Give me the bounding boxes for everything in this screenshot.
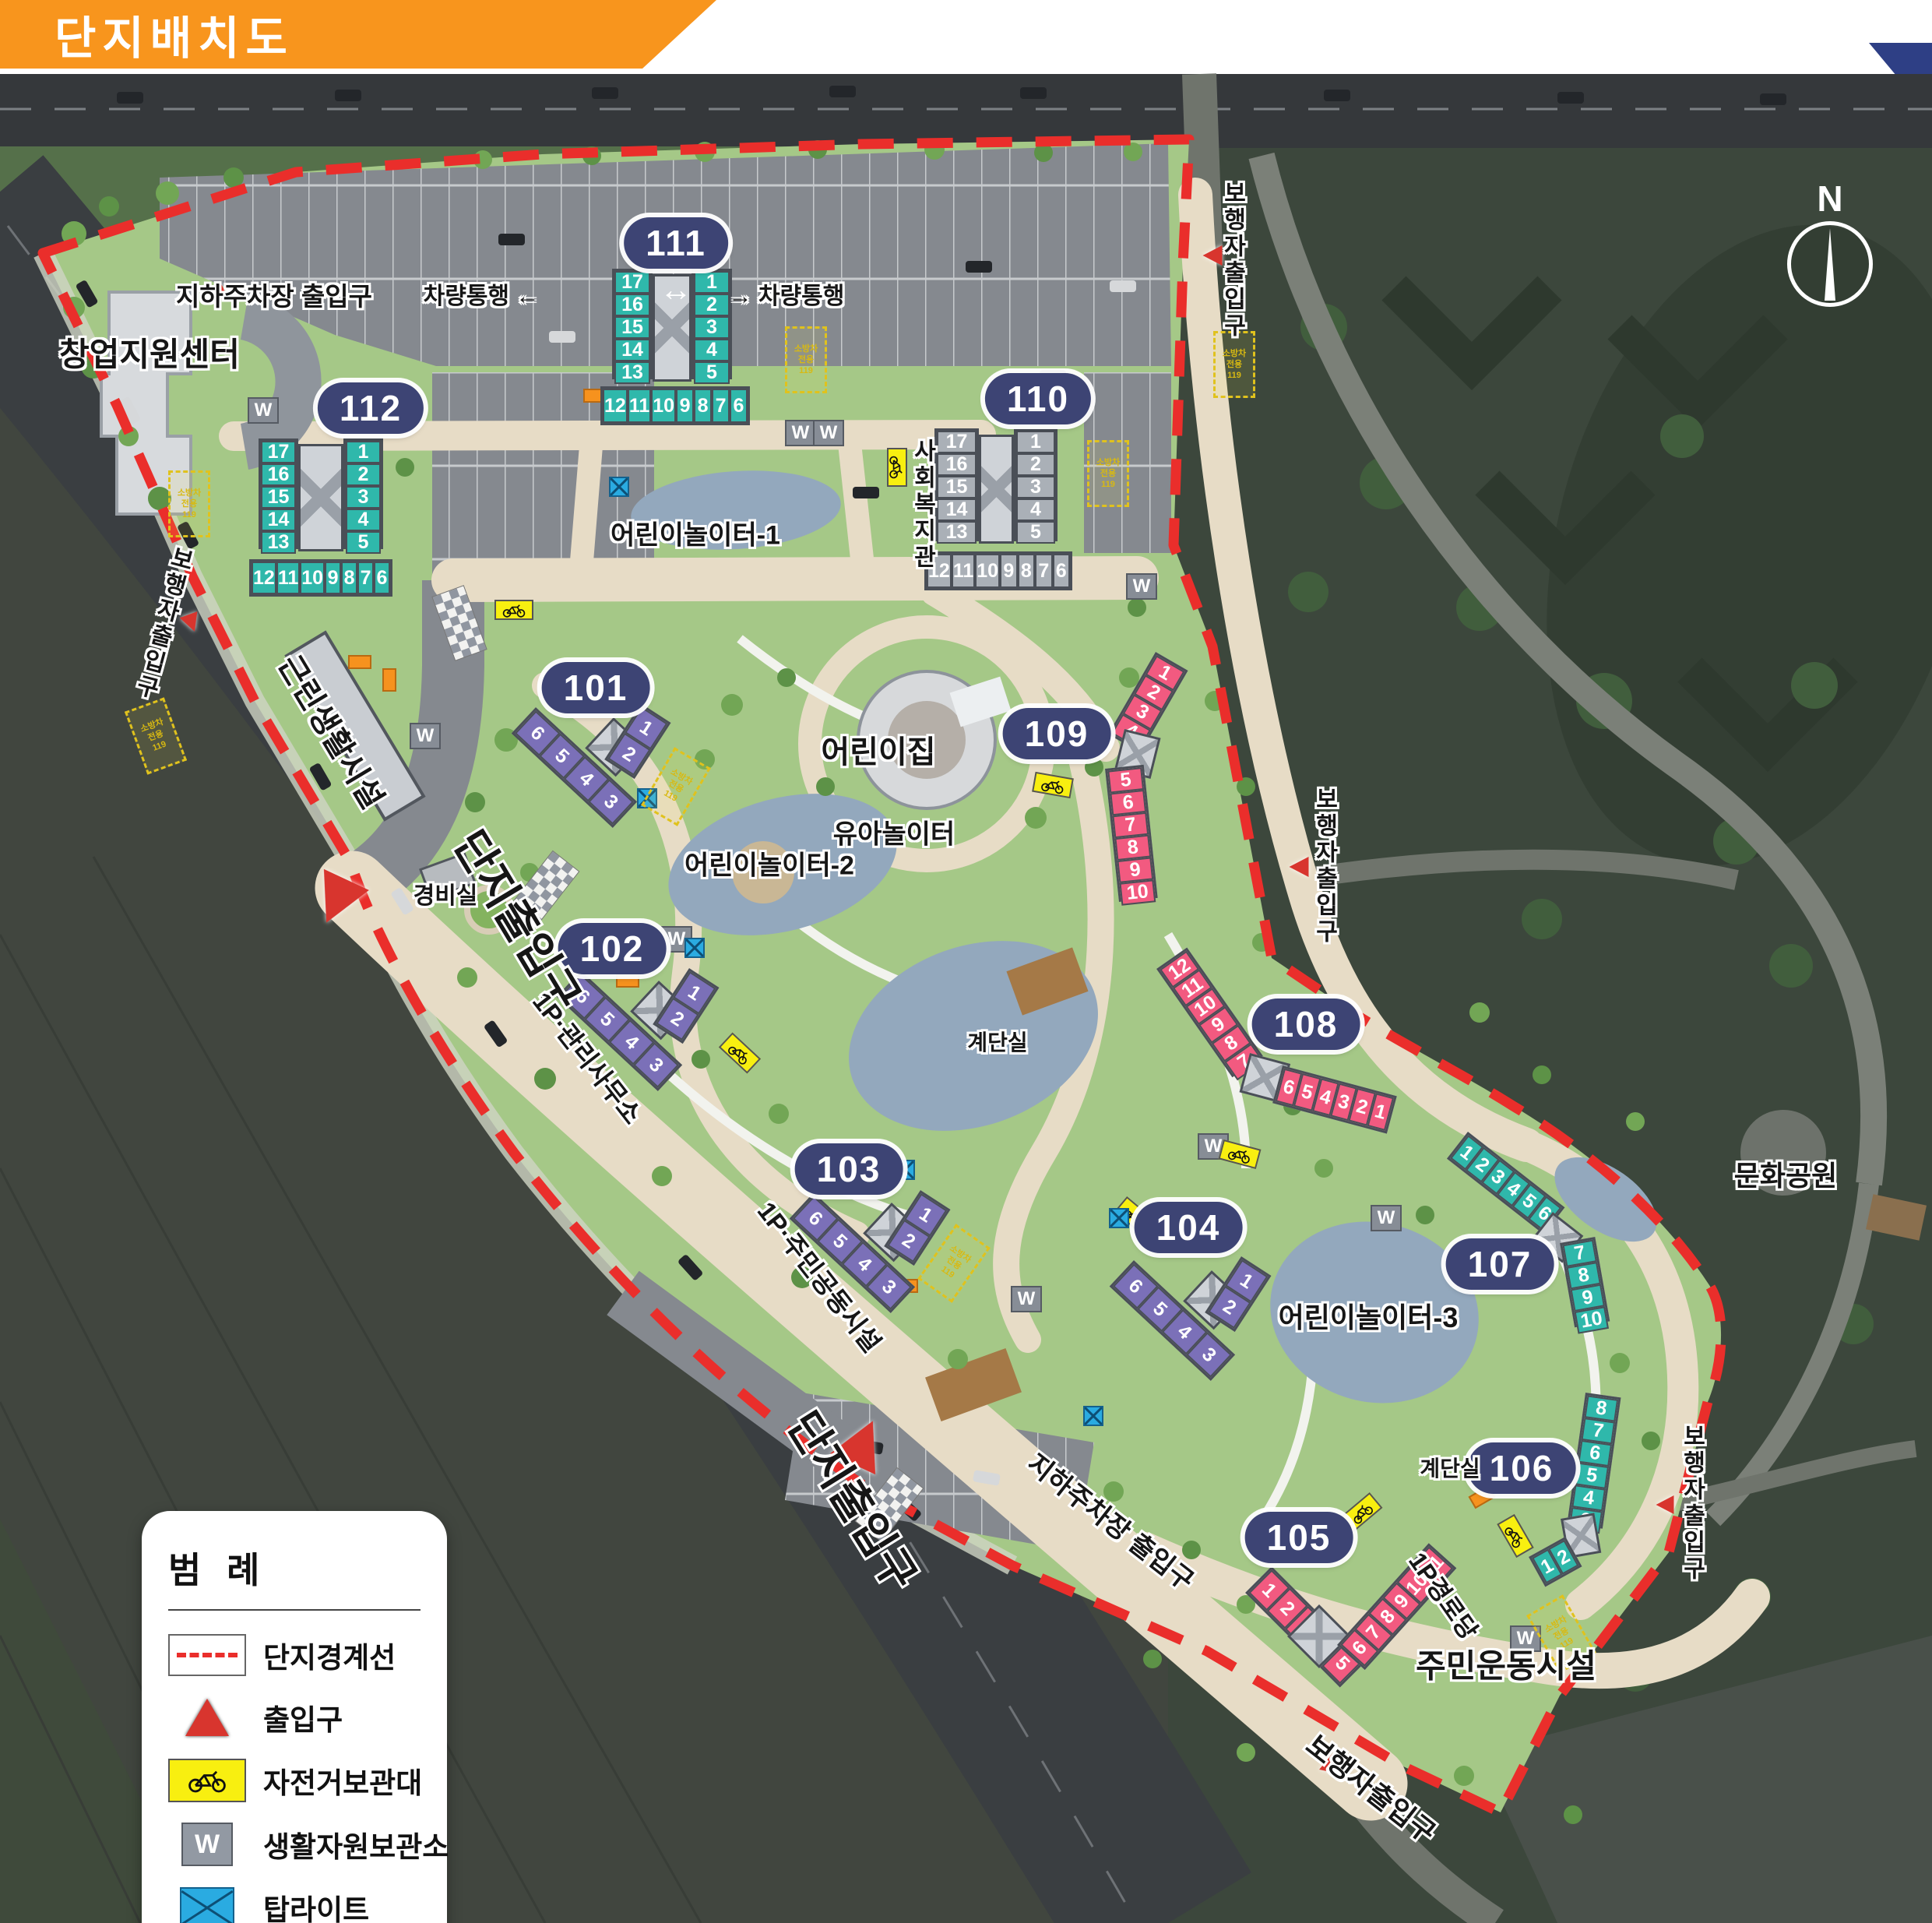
legend-item-xbox: 탑라이트 xyxy=(168,1886,421,1923)
legend-symbol-wbox-icon: W xyxy=(168,1823,246,1866)
compass-north-label: N xyxy=(1817,178,1842,219)
legend-symbol-xbox-icon xyxy=(168,1887,246,1923)
legend-label-dash: 단지경계선 xyxy=(263,1634,396,1676)
label-ped-entrance-right-mid: 보행자출입구 xyxy=(1307,787,1341,946)
label-complex-entrance-left: 단지출입구 xyxy=(442,817,599,1022)
label-vehicle-pass-right: → 차량통행 xyxy=(729,276,845,311)
legend-label-wbox: 생활자원보관소 xyxy=(263,1823,449,1865)
label-playground-1: 어린이놀이터-1 xyxy=(611,514,780,552)
label-seniors-center: 1P경로당 xyxy=(1402,1544,1488,1647)
label-two-way-arrow: ↔ xyxy=(660,271,692,308)
label-ped-entrance-bottom: 보행자출입구 xyxy=(1299,1724,1446,1851)
label-underground-entrance-top: 지하주차장 출입구 xyxy=(176,276,372,313)
label-playground-3: 어린이놀이터-3 xyxy=(1279,1295,1459,1336)
legend-label-xbox: 탑라이트 xyxy=(263,1886,369,1923)
legend-item-dash: 단지경계선 xyxy=(168,1634,421,1676)
label-community-facility: 1P·주민공동시설 xyxy=(750,1192,892,1359)
label-startup-center: 창업지원센터 xyxy=(59,329,240,376)
label-neighborhood-facility: 근린생활시설 xyxy=(269,645,396,815)
legend-item-wbox: W생활자원보관소 xyxy=(168,1823,421,1866)
legend-symbol-bike-icon xyxy=(168,1759,246,1802)
site-plan-canvas: WWWWWWWWWW소방차전용119소방차전용119소방차전용119소방차전용1… xyxy=(0,0,1932,1923)
label-stairs-center: 계단실 xyxy=(967,1026,1027,1057)
label-complex-entrance-bottom: 단지출입구 xyxy=(775,1397,934,1601)
label-stairs-right: 계단실 xyxy=(1420,1452,1480,1483)
page-title: 단지배치도 xyxy=(0,2,294,67)
legend-item-bike: 자전거보관대 xyxy=(168,1759,421,1802)
label-welfare-center: 사회복지관 xyxy=(905,438,939,571)
compass-ring xyxy=(1787,221,1873,307)
label-underground-entrance-bottom: 지하주차장 출입구 xyxy=(1021,1443,1204,1597)
label-vehicle-pass-left: 차량통행 ← xyxy=(424,276,540,311)
label-ped-entrance-right-low: 보행자출입구 xyxy=(1674,1424,1709,1583)
legend-symbol-dash-icon xyxy=(168,1634,246,1676)
label-daycare: 어린이집 xyxy=(821,727,935,772)
label-ped-entrance-top-right: 보행자출입구 xyxy=(1215,181,1249,340)
legend-label-bike: 자전거보관대 xyxy=(263,1759,422,1801)
legend-items: 단지경계선출입구자전거보관대W생활자원보관소탑라이트환기구 xyxy=(168,1634,421,1923)
legend-title: 범 례 xyxy=(168,1542,421,1594)
legend-label-tri: 출입구 xyxy=(263,1696,343,1738)
legend-item-tri: 출입구 xyxy=(168,1696,421,1738)
legend-symbol-tri-icon xyxy=(168,1699,246,1736)
label-playground-2: 어린이놀이터-2 xyxy=(684,844,854,882)
title-banner: 단지배치도 xyxy=(0,0,716,69)
compass-needle-icon xyxy=(1791,225,1869,303)
label-culture-park: 문화공원 xyxy=(1734,1153,1837,1194)
label-ped-entrance-left: 보행자출입구 xyxy=(125,542,199,704)
label-mgmt-office: 1P·관리사무소 xyxy=(526,983,653,1131)
legend-divider xyxy=(168,1609,421,1611)
label-sports-facility: 주민운동시설 xyxy=(1416,1640,1596,1688)
legend-card: 범 례 단지경계선출입구자전거보관대W생활자원보관소탑라이트환기구 xyxy=(142,1511,447,1923)
compass: N xyxy=(1782,178,1878,307)
